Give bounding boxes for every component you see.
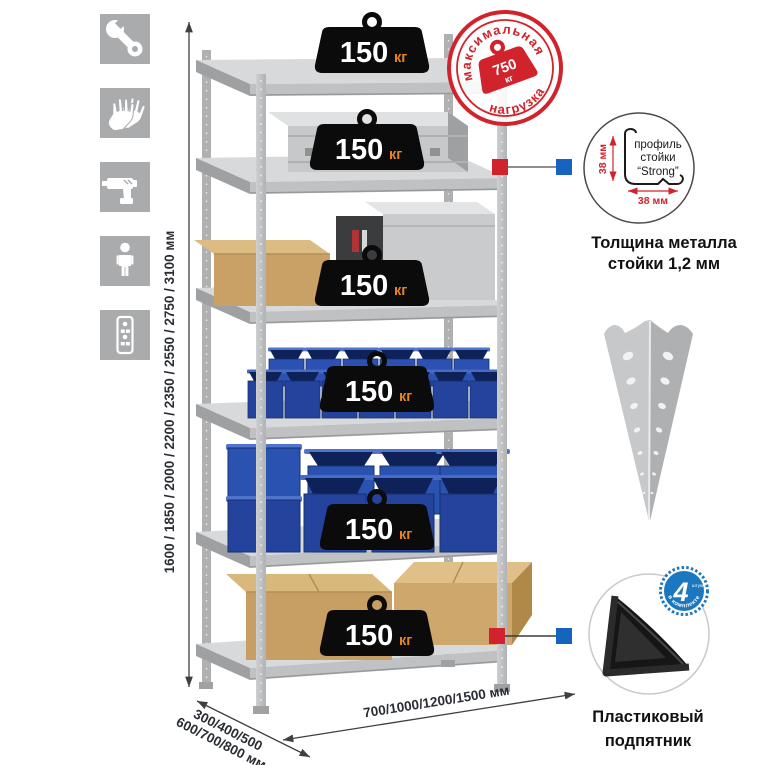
blue-marker	[556, 628, 572, 644]
profile-callout-connector	[492, 159, 572, 175]
product-diagram: 150 кг 150 кг 150 кг 150 кг 150 кг	[0, 0, 765, 765]
profile-note-3: “Strong”	[637, 166, 679, 178]
profile-note-1: профиль	[634, 139, 682, 151]
profile-horizontal-dim: 38 мм	[638, 195, 668, 207]
plastic-foot-circle: 4 штуки в комплекте	[589, 568, 709, 695]
foot-caption-2: подпятник	[605, 732, 692, 750]
feature-icons	[100, 13, 150, 360]
corner-post-image	[604, 320, 693, 521]
load-value: 150	[340, 37, 388, 69]
load-value: 150	[345, 514, 393, 546]
load-unit: кг	[399, 633, 412, 649]
width-dimension-label: 700/1000/1200/1500 мм	[362, 683, 510, 721]
height-dimension: 1600 / 1850 / 2000 / 2200 / 2350 / 2550 …	[162, 22, 189, 687]
load-unit: кг	[394, 283, 407, 299]
depth-dimension: 300/400/500 600/700/800 мм	[174, 701, 310, 765]
badge-small-text: штуки	[692, 583, 705, 588]
cardboard-box	[214, 254, 330, 306]
load-unit: кг	[399, 389, 412, 405]
foot-callout-connector	[489, 628, 572, 644]
rack-post-icon	[100, 310, 150, 360]
load-value: 150	[345, 620, 393, 652]
load-value: 150	[340, 270, 388, 302]
load-value: 150	[335, 134, 383, 166]
load-value: 150	[345, 376, 393, 408]
back-right-foot	[441, 660, 455, 667]
red-marker	[492, 159, 508, 175]
red-marker	[489, 628, 505, 644]
person-icon	[100, 236, 150, 286]
front-left-post	[256, 74, 266, 712]
profile-caption-2: стойки 1,2 мм	[608, 255, 720, 273]
front-left-foot	[253, 706, 269, 714]
metal-case-top	[365, 202, 495, 214]
weight-badge-1: 150 кг	[315, 15, 429, 74]
load-unit: кг	[394, 50, 407, 66]
back-left-foot	[199, 682, 213, 689]
profile-callout-circle: 38 мм 38 мм профиль стойки “Strong”	[584, 113, 694, 223]
load-unit: кг	[389, 147, 402, 163]
profile-caption-1: Толщина металла	[591, 234, 737, 252]
height-dimension-label: 1600 / 1850 / 2000 / 2200 / 2350 / 2550 …	[162, 231, 177, 574]
wrench-icon	[100, 13, 150, 64]
width-dimension: 700/1000/1200/1500 мм	[283, 683, 575, 740]
profile-vertical-dim: 38 мм	[597, 144, 609, 174]
foot-caption-1: Пластиковый	[592, 708, 703, 726]
profile-note-2: стойки	[640, 152, 675, 164]
gloves-icon	[100, 88, 150, 138]
load-unit: кг	[399, 527, 412, 543]
blue-marker	[556, 159, 572, 175]
drill-icon	[100, 162, 150, 212]
